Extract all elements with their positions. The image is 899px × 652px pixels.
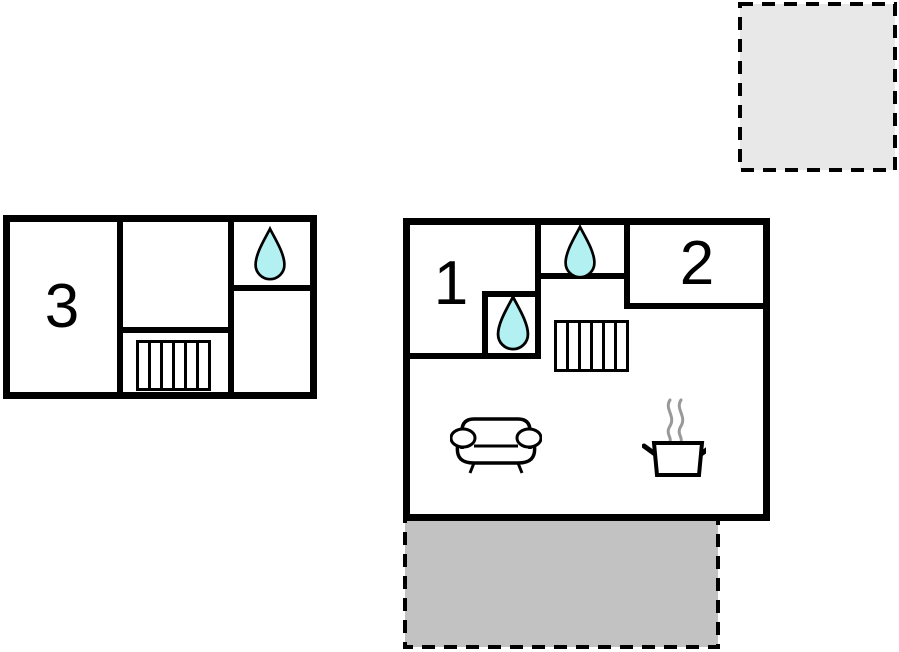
steam-line — [679, 400, 683, 442]
sofa-icon — [450, 415, 542, 475]
wall-left-unit-v1 — [117, 222, 123, 392]
water-drop-icon — [494, 295, 532, 351]
floorplan-main-unit: 1 2 — [403, 218, 770, 521]
floorplan-canvas: 3 1 2 — [0, 0, 899, 652]
terrace-bottom-area — [405, 517, 718, 647]
wall-room2-bottom — [624, 303, 763, 309]
water-drop-icon — [252, 226, 288, 282]
room-2-label: 2 — [667, 232, 727, 296]
radiator-icon — [136, 340, 211, 391]
floorplan-left-unit: 3 — [3, 215, 317, 399]
wall-smallbath-left — [482, 291, 488, 359]
terrace-bottom — [401, 513, 722, 652]
wall-main-vB — [624, 225, 630, 309]
terrace-top-right-area — [740, 4, 895, 170]
water-drop-icon — [562, 225, 598, 279]
wall-room1-bottom — [410, 353, 541, 359]
wall-left-unit-h-right — [228, 285, 310, 291]
steam-line — [668, 400, 672, 442]
terrace-top-right — [735, 0, 899, 176]
room-1-label: 1 — [421, 252, 481, 316]
room-3-label: 3 — [32, 275, 92, 339]
wall-left-unit-h-mid — [117, 327, 234, 333]
cooking-pot-icon — [642, 397, 706, 477]
radiator-icon — [554, 320, 629, 372]
wall-left-unit-v2 — [228, 222, 234, 392]
